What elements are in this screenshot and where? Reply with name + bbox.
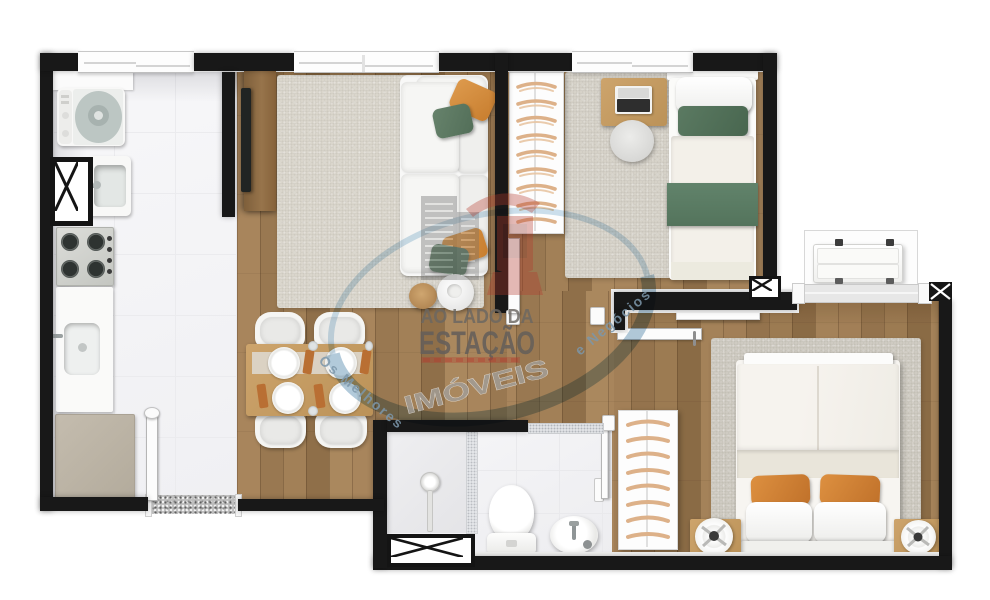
svg-text:ESTAÇÃO: ESTAÇÃO: [419, 325, 535, 361]
svg-text:Os Melhores: Os Melhores: [316, 352, 408, 432]
